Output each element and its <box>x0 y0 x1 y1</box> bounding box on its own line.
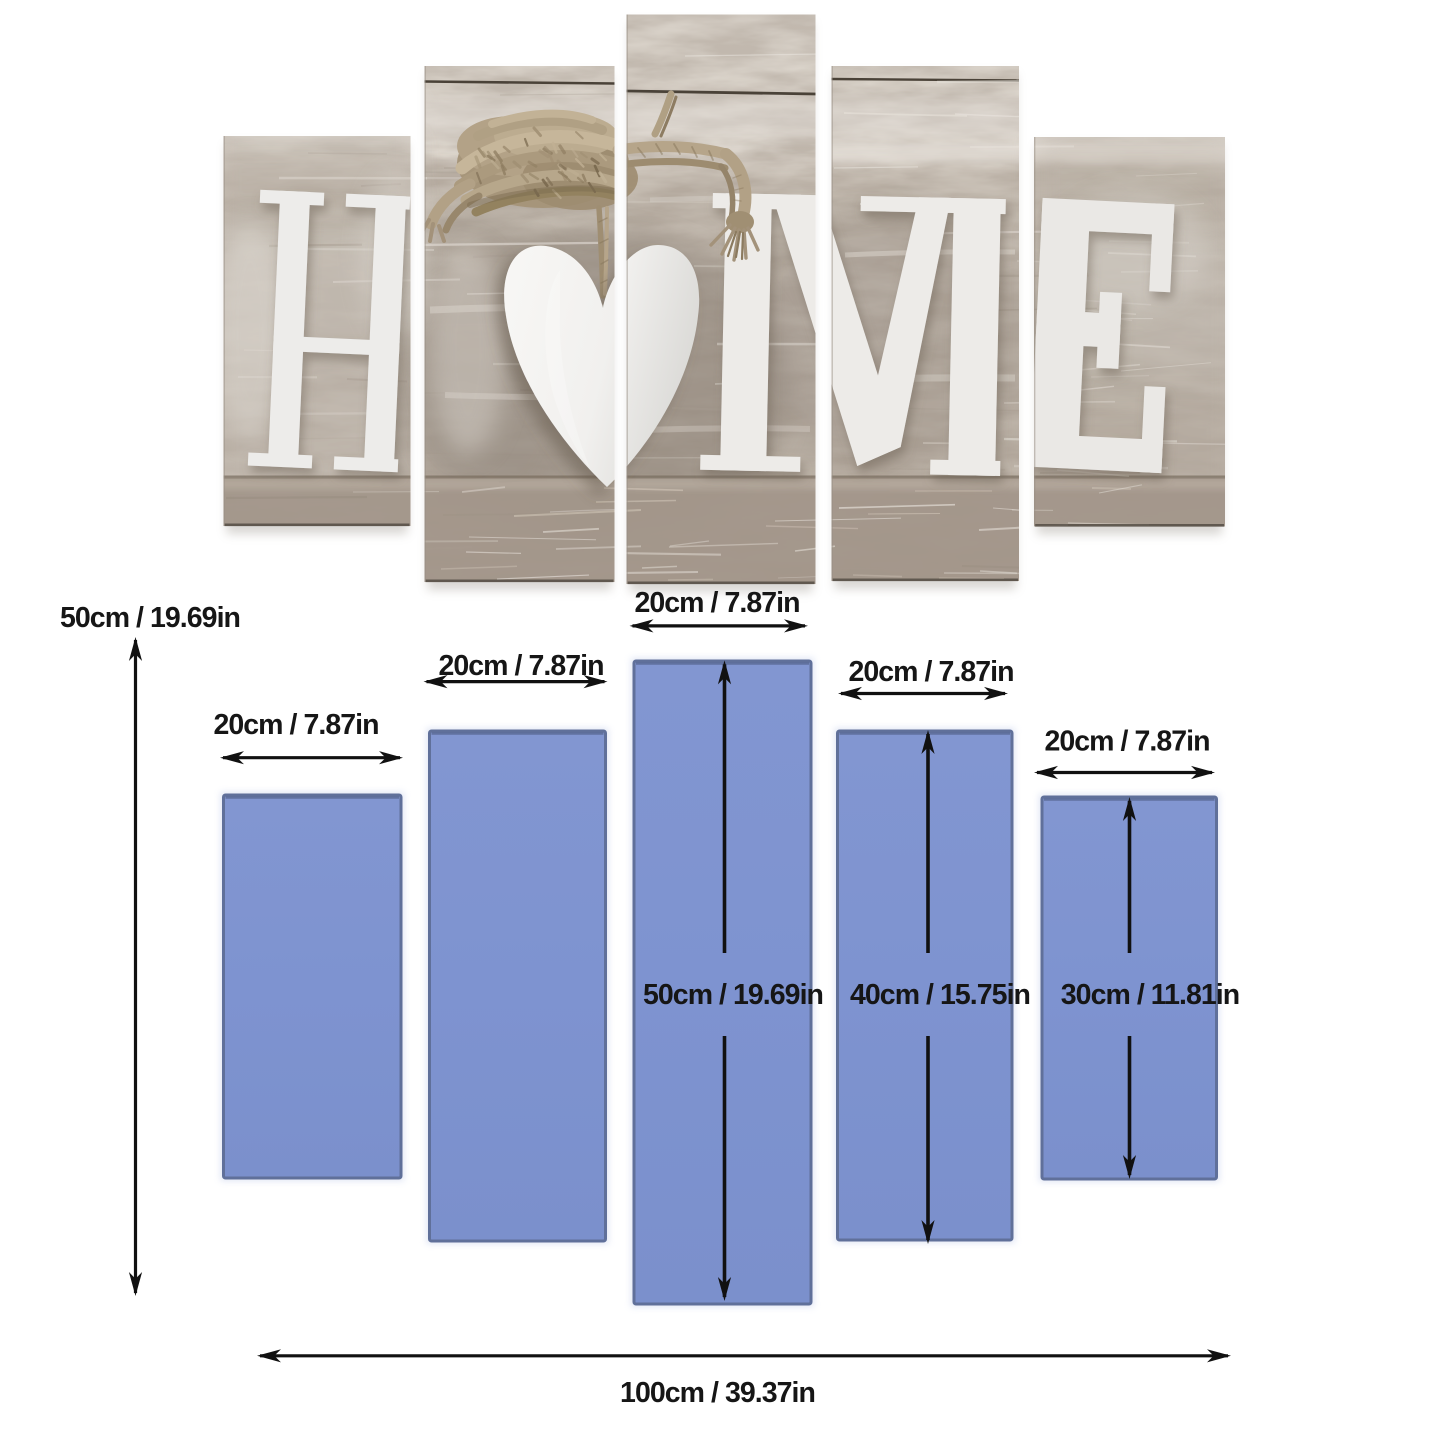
svg-text:20cm / 7.87in: 20cm / 7.87in <box>848 656 1013 688</box>
svg-text:30cm / 11.81in: 30cm / 11.81in <box>1061 979 1239 1011</box>
svg-text:20cm / 7.87in: 20cm / 7.87in <box>1044 726 1209 758</box>
svg-text:50cm / 19.69in: 50cm / 19.69in <box>60 602 240 634</box>
svg-text:50cm / 19.69in: 50cm / 19.69in <box>643 979 823 1011</box>
svg-text:20cm / 7.87in: 20cm / 7.87in <box>634 587 799 619</box>
svg-text:20cm / 7.87in: 20cm / 7.87in <box>438 650 603 682</box>
svg-text:20cm / 7.87in: 20cm / 7.87in <box>213 709 378 741</box>
svg-text:100cm / 39.37in: 100cm / 39.37in <box>620 1377 815 1409</box>
svg-text:40cm / 15.75in: 40cm / 15.75in <box>850 979 1030 1011</box>
